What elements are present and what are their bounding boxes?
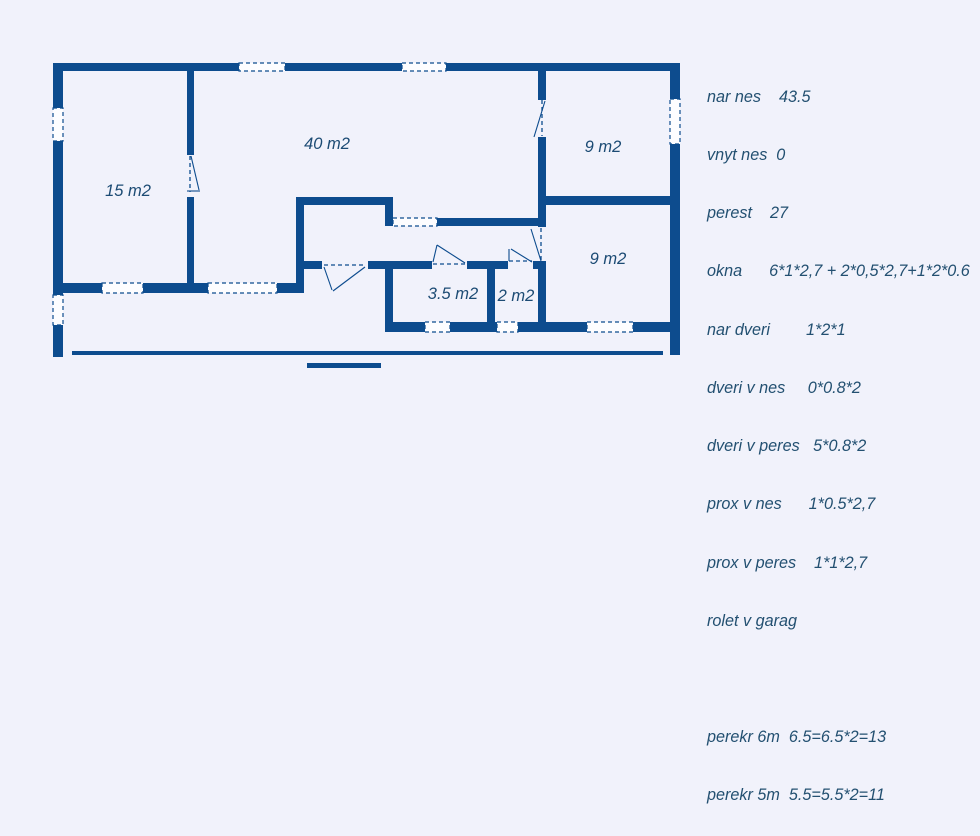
note-line: rolet v garag <box>707 612 970 631</box>
corridor-opening <box>393 218 437 226</box>
door-swing <box>531 229 541 261</box>
window <box>670 99 680 144</box>
note-line: prox v peres 1*1*2,7 <box>707 554 970 573</box>
wall-segment <box>538 71 546 100</box>
wall-segment <box>53 325 63 357</box>
window <box>587 322 633 332</box>
door-swing <box>437 245 465 263</box>
note-line: okna 6*1*2,7 + 2*0,5*2,7+1*2*0.6 <box>707 262 970 281</box>
wall-segment <box>53 141 63 295</box>
window <box>53 108 63 141</box>
window <box>239 63 285 71</box>
wall-segment <box>368 261 432 269</box>
calc-notes: nar nes 43.5 vnyt nes 0 perest 27 okna 6… <box>707 49 970 836</box>
wall-segment <box>385 322 425 332</box>
wall-segment <box>487 269 495 322</box>
wall-segment <box>450 322 497 332</box>
note-line: vnyt nes 0 <box>707 146 970 165</box>
wall-segment <box>296 197 304 293</box>
room-label-2m2: 2 m2 <box>497 287 535 305</box>
wall-segment <box>187 71 194 155</box>
wall-segment <box>538 137 546 227</box>
walls <box>53 63 680 368</box>
door-swing <box>324 267 332 290</box>
room-label-15m2: 15 m2 <box>105 182 151 200</box>
wall-segment <box>296 197 393 205</box>
note-line: perest 27 <box>707 204 970 223</box>
room-label-9m2-bottom: 9 m2 <box>590 250 627 268</box>
wall-segment <box>187 197 194 283</box>
note-line: dveri v nes 0*0.8*2 <box>707 379 970 398</box>
room-label-3-5m2: 3.5 m2 <box>428 285 478 303</box>
note-line: perekr 6m 6.5=6.5*2=13 <box>707 728 970 747</box>
door-swing <box>433 245 437 262</box>
window <box>102 283 143 293</box>
door-swing <box>511 249 532 262</box>
wall-segment <box>437 218 538 226</box>
room-label-40m2: 40 m2 <box>304 135 350 153</box>
note-line: perekr 5m 5.5=5.5*2=11 <box>707 786 970 805</box>
entrance-step-bar <box>307 363 381 368</box>
note-line-blank <box>707 670 970 689</box>
room-labels: 15 m2 40 m2 9 m2 9 m2 3.5 m2 2 m2 <box>105 135 626 305</box>
door-swing <box>333 267 365 291</box>
room-label-9m2-top: 9 m2 <box>585 138 622 156</box>
note-line: nar nes 43.5 <box>707 88 970 107</box>
garage-opening <box>53 295 63 325</box>
note-line: dveri v peres 5*0.8*2 <box>707 437 970 456</box>
wall-segment <box>385 197 393 226</box>
window <box>208 283 277 293</box>
wall-segment <box>304 261 322 269</box>
wall-segment <box>633 322 680 332</box>
door-swing <box>191 156 199 190</box>
wall-segment <box>538 262 546 322</box>
note-line: nar dveri 1*2*1 <box>707 321 970 340</box>
wall-segment <box>670 63 680 99</box>
wall-segment <box>53 63 680 71</box>
wall-segment <box>533 261 546 269</box>
floor-plan-sheet: 15 m2 40 m2 9 m2 9 m2 3.5 m2 2 m2 nar ne… <box>0 0 980 418</box>
window <box>402 63 446 71</box>
terrace-edge-line <box>72 351 663 355</box>
window <box>497 322 518 332</box>
wall-segment <box>467 261 508 269</box>
note-line: prox v nes 1*0.5*2,7 <box>707 495 970 514</box>
wall-segment <box>53 283 102 293</box>
wall-segment <box>546 196 670 205</box>
wall-segment <box>518 322 587 332</box>
wall-segment <box>143 283 208 293</box>
wall-segment <box>385 261 393 322</box>
window <box>425 322 450 332</box>
door-swing <box>534 101 545 137</box>
wall-segment <box>53 63 63 108</box>
